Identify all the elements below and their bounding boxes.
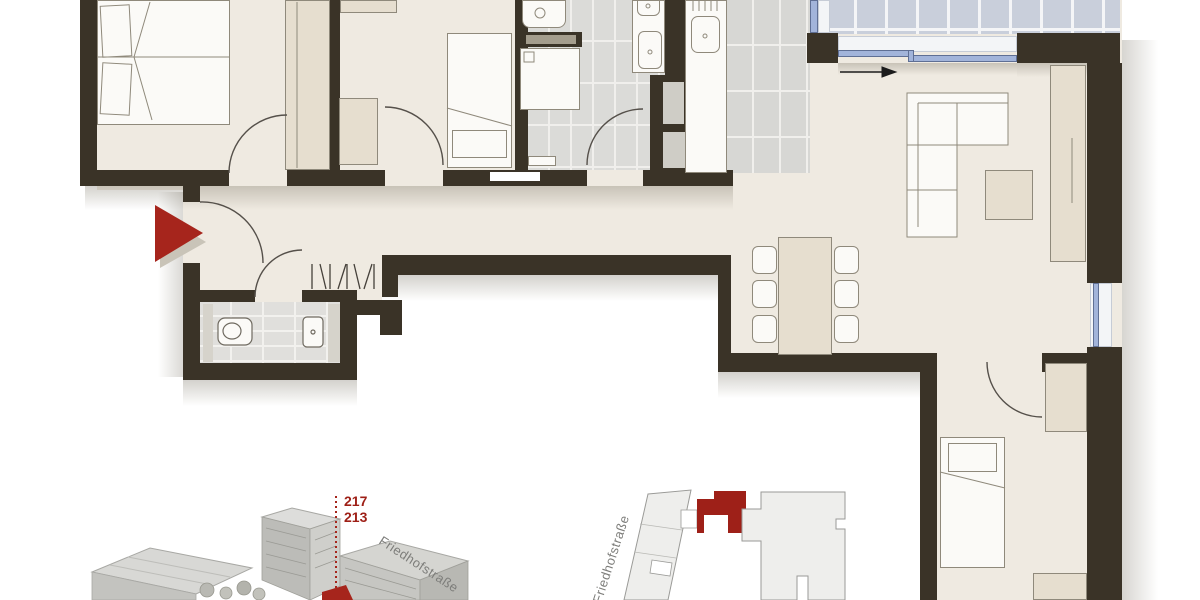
wall-west (80, 0, 97, 186)
wardrobe (339, 98, 378, 165)
pillow (948, 443, 997, 472)
kitchen-window (810, 0, 818, 33)
duct-niche (663, 82, 684, 124)
balcony-door-frame (838, 50, 914, 57)
wall-hall-north (287, 170, 385, 186)
wall-wc (183, 290, 255, 302)
dining-chair (752, 246, 777, 274)
wall-threshold (490, 172, 540, 181)
site-plan-inset: Friedhofstraße (590, 490, 845, 600)
building-number-213: 213 (344, 509, 368, 525)
balcony-door-joint (908, 50, 914, 62)
shadow (158, 192, 183, 377)
sideboard (1050, 65, 1086, 262)
shadow (183, 380, 357, 406)
shelf (340, 0, 397, 13)
kitchen-sink (691, 16, 720, 53)
wall-entrance (183, 186, 200, 202)
wall-hall-south (382, 255, 731, 275)
wall-hall-south (357, 300, 402, 315)
dining-chair (752, 315, 777, 343)
bath-mat (528, 156, 556, 166)
site-plan-highlight-unit (697, 491, 746, 533)
wall-wc (340, 302, 357, 363)
window-east-frame (1093, 283, 1099, 347)
wc-floor (200, 302, 340, 363)
wall-living-south (718, 353, 937, 372)
kitchen-floor (727, 0, 810, 173)
wall-wc (183, 363, 357, 380)
wall-balcony-pier (1017, 33, 1120, 63)
shower (520, 48, 580, 110)
wall-hall-south (380, 315, 402, 335)
wall-bedroom-se-west (920, 372, 937, 600)
bath-ledge-inner (526, 35, 576, 44)
balcony-sliding-leaf (910, 55, 1017, 62)
wall-east (1087, 347, 1122, 600)
pillow (100, 62, 133, 115)
shadow (1122, 40, 1158, 600)
pillow (452, 130, 507, 158)
aerial-highlight-unit (322, 585, 353, 600)
wall-bath-kitchen (665, 0, 685, 78)
wc-duct-strip (203, 304, 213, 362)
wall-hall-south (382, 255, 398, 297)
shadow (838, 63, 1017, 75)
building-number-217: 217 (344, 493, 368, 509)
dining-chair (834, 280, 859, 308)
wall-balcony-pier (807, 33, 838, 63)
street-label-site: Friedhofstraße (590, 513, 633, 600)
ottoman (985, 170, 1033, 220)
wall-wc (302, 290, 357, 302)
aerial-3d-inset: 217 213 Friedhofstraße (92, 493, 468, 600)
street-label-3d: Friedhofstraße (376, 533, 461, 595)
wall-east (1087, 63, 1122, 283)
pillow (100, 4, 133, 57)
bathtub (522, 0, 566, 28)
dining-chair (752, 280, 777, 308)
wardrobe (1045, 363, 1087, 432)
washbasin (637, 0, 660, 16)
dining-chair (834, 315, 859, 343)
washbasin (638, 31, 662, 69)
duct-niche (663, 132, 687, 168)
balcony-floor (826, 0, 1120, 34)
dining-table (778, 237, 832, 355)
desk (1033, 573, 1087, 600)
wall-dining-west (718, 255, 731, 368)
floor-plan-page: 217 213 Friedhofstraße Friedhofstraße (0, 0, 1200, 600)
dining-chair (834, 246, 859, 274)
outside-area (357, 315, 382, 375)
shadow (382, 275, 731, 301)
wc-duct-strip (328, 304, 340, 362)
wall-hall-north (80, 170, 229, 186)
wardrobe (285, 0, 330, 170)
kitchen-window-glazing (818, 0, 830, 33)
shadow (718, 372, 937, 398)
